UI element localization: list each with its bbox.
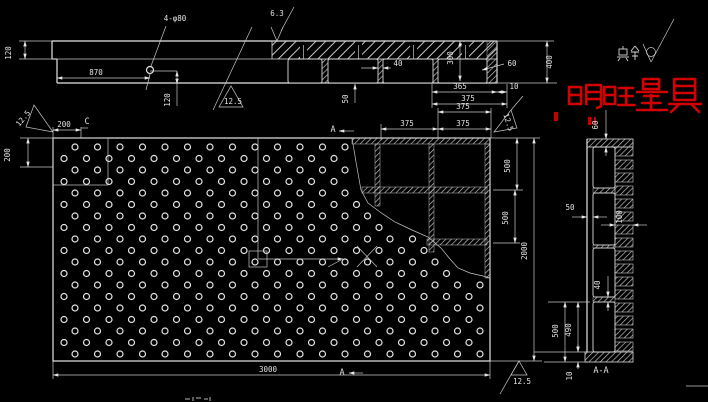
side-cavities: [593, 147, 615, 352]
dim-50-side: 50: [565, 203, 575, 212]
dim-60-rib: 60: [507, 59, 517, 68]
dim-100-side: 100: [615, 210, 624, 224]
dim-10-top: 10: [509, 82, 519, 91]
dim-500-a: 500: [503, 159, 512, 173]
dim-400: 400: [545, 55, 554, 69]
watermark-fragments: [554, 112, 596, 125]
cad-drawing-canvas: 120 870 4-φ80 6.3 120 12.5 40 300 60 400…: [0, 0, 708, 402]
section-a-top: A: [330, 125, 335, 135]
dim-120-hole: 120: [163, 93, 172, 107]
dim-870: 870: [89, 68, 103, 77]
section-a-bottom: A: [339, 368, 344, 378]
roughness-63: 6.3: [270, 9, 284, 18]
general-roughness-note: [617, 19, 674, 62]
dim-10-side: 10: [565, 371, 574, 381]
roughness-125-main-symbol: [26, 105, 53, 132]
dim-40-side: 40: [593, 280, 602, 290]
dim-50-top: 50: [341, 94, 350, 104]
dim-490-side: 490: [564, 323, 573, 337]
machining-check-symbol: [643, 19, 674, 62]
front-section-view: [19, 7, 557, 110]
dim-40-rib: 40: [393, 59, 403, 68]
dim-120-left: 120: [4, 46, 13, 60]
dim-3000: 3000: [259, 365, 278, 374]
mount-hole: [147, 67, 154, 74]
truncated-caption-strokes: [185, 397, 210, 401]
roughness-125-tr: 12.5: [501, 112, 515, 132]
roughness-125-front: 12.5: [224, 97, 242, 106]
dim-500-side: 500: [551, 324, 560, 338]
dim-60-side: 60: [591, 120, 600, 130]
dim-2000: 2000: [520, 241, 529, 260]
dim-200-v: 200: [3, 148, 12, 162]
drawing-svg: 120 870 4-φ80 6.3 120 12.5 40 300 60 400…: [0, 0, 708, 402]
watermark-text: [569, 79, 701, 112]
plan-view: [20, 96, 542, 394]
hole-grid: [61, 144, 483, 357]
plate-outline: [53, 138, 490, 361]
section-aa-label: A-A: [593, 366, 608, 376]
roughness-125-br: 12.5: [513, 377, 531, 386]
dim-500-b: 500: [501, 211, 510, 225]
side-rib-slots: [615, 147, 633, 351]
dim-375-b: 375: [400, 119, 414, 128]
roughness-125-main: 12.5: [14, 109, 33, 129]
dim-200-h: 200: [57, 120, 71, 129]
hole-callout: 4-φ80: [164, 14, 187, 23]
break-line: [352, 138, 490, 278]
cutaway-rib-grid: [352, 138, 490, 278]
detail-c-label: C: [84, 117, 89, 127]
dim-300: 300: [446, 51, 455, 65]
dim-375-c: 375: [456, 119, 470, 128]
dim-365: 365: [453, 82, 467, 91]
qiyu-characters: [617, 46, 639, 61]
dim-375-a: 375: [456, 102, 470, 111]
